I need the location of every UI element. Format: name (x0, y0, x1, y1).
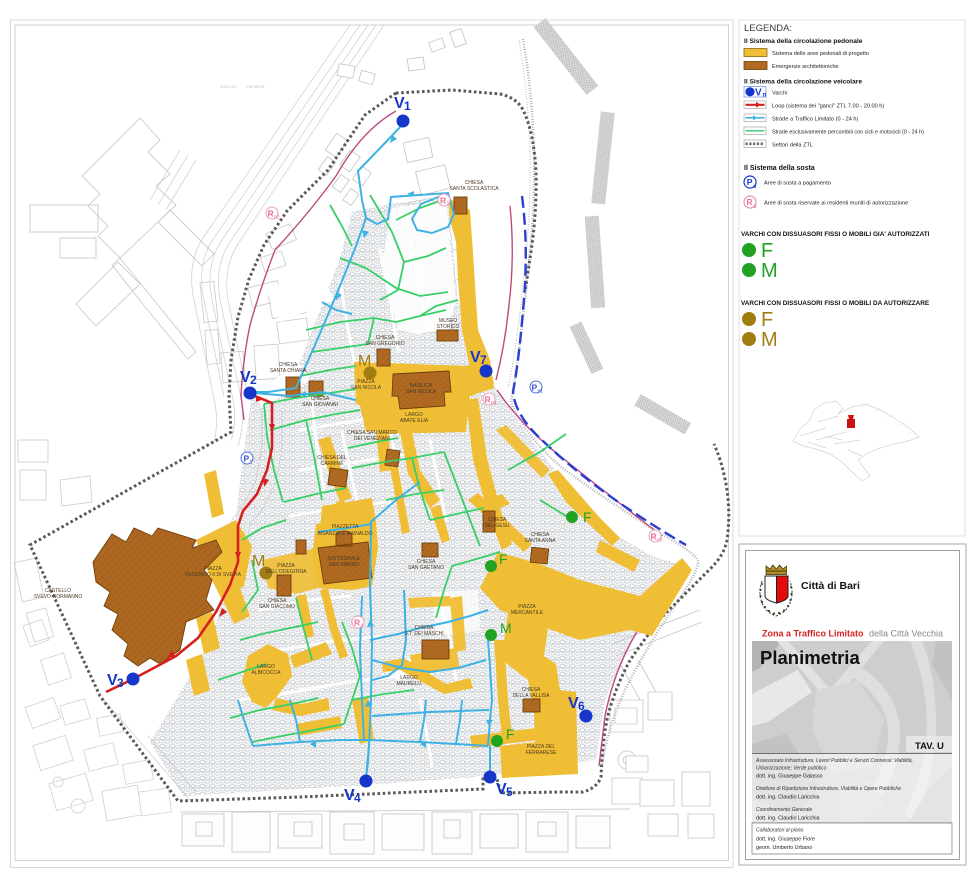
svg-text:1: 1 (447, 202, 450, 208)
svg-text:TAV. U: TAV. U (915, 741, 944, 752)
svg-text:BISANZIO E RAINALDO: BISANZIO E RAINALDO (317, 531, 372, 537)
svg-text:Planimetria: Planimetria (760, 647, 860, 668)
svg-text:M: M (358, 353, 371, 370)
svg-text:R: R (746, 197, 753, 207)
svg-text:stazione: stazione (220, 84, 237, 89)
svg-text:x: x (754, 204, 757, 210)
svg-text:VARCHI CON DISSUASORI FISSI O: VARCHI CON DISSUASORI FISSI O MOBILI DA … (741, 300, 930, 307)
svg-text:n1: n1 (491, 401, 497, 407)
svg-text:Strade esclusivamente percorri: Strade esclusivamente percorribili con c… (772, 130, 924, 136)
svg-text:Urbanizzazione; Verde pubblico: Urbanizzazione; Verde pubblico (756, 766, 827, 772)
svg-text:R: R (651, 532, 657, 542)
svg-text:F: F (761, 240, 773, 262)
svg-text:F: F (499, 551, 508, 567)
svg-text:F: F (583, 509, 592, 525)
svg-text:R: R (485, 395, 491, 405)
svg-text:Zona a Traffico Limitato: Zona a Traffico Limitato (762, 629, 864, 639)
svg-text:SAN SABINO: SAN SABINO (329, 562, 360, 568)
svg-text:della Città Vecchia: della Città Vecchia (869, 629, 943, 639)
svg-text:Strade a Traffico Limitato (0: Strade a Traffico Limitato (0 - 24 h) (772, 117, 858, 123)
svg-text:3: 3 (117, 676, 124, 690)
svg-text:n: n (763, 92, 767, 99)
svg-text:n3: n3 (657, 538, 663, 544)
svg-text:FERRARESE: FERRARESE (526, 750, 557, 756)
svg-text:Il Sistema della sosta: Il Sistema della sosta (744, 165, 815, 172)
svg-text:R: R (268, 209, 274, 219)
svg-text:VARCHI CON DISSUASORI FISSI O: VARCHI CON DISSUASORI FISSI O MOBILI GIA… (741, 231, 930, 238)
svg-text:Il Sistema della circolazione: Il Sistema della circolazione veicolare (744, 79, 862, 86)
svg-text:M: M (761, 329, 778, 351)
svg-text:Direttore di Ripartizione Infr: Direttore di Ripartizione Infrastrutture… (756, 786, 901, 792)
svg-text:6: 6 (578, 699, 585, 713)
svg-text:SAN NICOLA: SAN NICOLA (406, 389, 437, 395)
svg-text:SANTA ANNA: SANTA ANNA (524, 538, 556, 544)
svg-text:5: 5 (506, 785, 513, 799)
svg-text:dott. ing. Claudio Laricchia: dott. ing. Claudio Laricchia (756, 816, 820, 822)
svg-text:R: R (354, 618, 360, 628)
svg-text:Aree di sosta riservate ai res: Aree di sosta riservate ai residenti mun… (764, 201, 908, 207)
svg-text:ALBICOCCA: ALBICOCCA (252, 670, 282, 676)
svg-text:SAN GAETANO: SAN GAETANO (408, 565, 444, 571)
svg-text:geom. Umberto Urbano: geom. Umberto Urbano (756, 845, 812, 851)
svg-text:PIAZZETTA: PIAZZETTA (332, 524, 359, 530)
svg-text:Varchi: Varchi (772, 91, 787, 97)
svg-text:Emergenze architettoniche: Emergenze architettoniche (772, 64, 839, 70)
svg-text:dott. ing. Giuseppe Galasso: dott. ing. Giuseppe Galasso (756, 774, 823, 780)
svg-text:Loop (sistema dei "ganci" ZTL: Loop (sistema dei "ganci" ZTL 7.00 - 20.… (772, 104, 884, 110)
svg-text:F: F (506, 726, 515, 742)
svg-text:7: 7 (480, 353, 487, 367)
svg-text:R: R (440, 196, 446, 206)
svg-text:M: M (500, 620, 512, 636)
svg-text:Assessorato Infrastrutture, La: Assessorato Infrastrutture, Lavori Pubbl… (755, 758, 913, 764)
svg-text:DEL GESU: DEL GESU (484, 523, 509, 529)
svg-text:F: F (761, 309, 773, 331)
svg-text:SAN GREGORIO: SAN GREGORIO (365, 341, 404, 347)
svg-text:DELLA VALLISA: DELLA VALLISA (513, 693, 551, 699)
svg-text:dott. ing. Giuseppe Fiore: dott. ing. Giuseppe Fiore (756, 837, 815, 843)
svg-text:V: V (755, 88, 762, 99)
svg-text:FEDERICO II DI SVEVIA: FEDERICO II DI SVEVIA (185, 572, 242, 578)
svg-text:1: 1 (250, 460, 253, 466)
svg-text:CARMINE: CARMINE (320, 461, 344, 467)
svg-text:ABATE ELIA: ABATE ELIA (400, 418, 429, 424)
svg-text:marittima: marittima (246, 84, 265, 89)
svg-text:Il Sistema della circolazione: Il Sistema della circolazione pedonale (744, 38, 863, 45)
svg-text:2: 2 (250, 373, 257, 387)
svg-text:1: 1 (404, 99, 411, 113)
svg-text:MERCANTILE: MERCANTILE (511, 610, 544, 616)
svg-text:M: M (761, 260, 778, 282)
svg-text:SANTA SCOLASTICA: SANTA SCOLASTICA (449, 186, 499, 192)
svg-text:SAN GIOVANNI: SAN GIOVANNI (302, 402, 338, 408)
svg-text:SVEVO-NORMANNO: SVEVO-NORMANNO (34, 594, 83, 600)
svg-text:Coordinamento Generale: Coordinamento Generale (756, 807, 812, 813)
svg-text:SANTA CHIARA: SANTA CHIARA (270, 368, 307, 374)
svg-text:dott. ing. Claudio Laricchia: dott. ing. Claudio Laricchia (756, 795, 820, 801)
svg-text:Sistema delle aree pedonali di: Sistema delle aree pedonali di progetto (772, 51, 869, 57)
svg-text:Collaboratori al piano: Collaboratori al piano (756, 828, 803, 834)
svg-text:e1: e1 (538, 389, 544, 395)
svg-text:STORICO: STORICO (437, 324, 460, 330)
svg-text:4: 4 (361, 624, 364, 630)
svg-text:4: 4 (354, 791, 361, 805)
svg-text:P: P (747, 177, 753, 187)
svg-text:M: M (252, 553, 265, 570)
svg-text:LEGENDA:: LEGENDA: (744, 23, 792, 34)
svg-text:x: x (754, 184, 757, 190)
svg-text:DELL'ODEGITRIA: DELL'ODEGITRIA (266, 569, 308, 575)
svg-text:n2: n2 (274, 215, 280, 221)
svg-text:Aree di sosta a pagamento: Aree di sosta a pagamento (764, 181, 831, 187)
svg-text:S.T. DEI MASCHI: S.T. DEI MASCHI (404, 631, 443, 637)
svg-text:SAN GIACOMO: SAN GIACOMO (259, 604, 295, 610)
svg-text:DEI VENEZIANI: DEI VENEZIANI (354, 436, 390, 442)
svg-text:Settori della ZTL: Settori della ZTL (772, 143, 813, 149)
svg-text:Città di Bari: Città di Bari (801, 580, 860, 592)
svg-text:SAN NICOLA: SAN NICOLA (351, 385, 382, 391)
svg-text:MAURELLI: MAURELLI (396, 681, 421, 687)
